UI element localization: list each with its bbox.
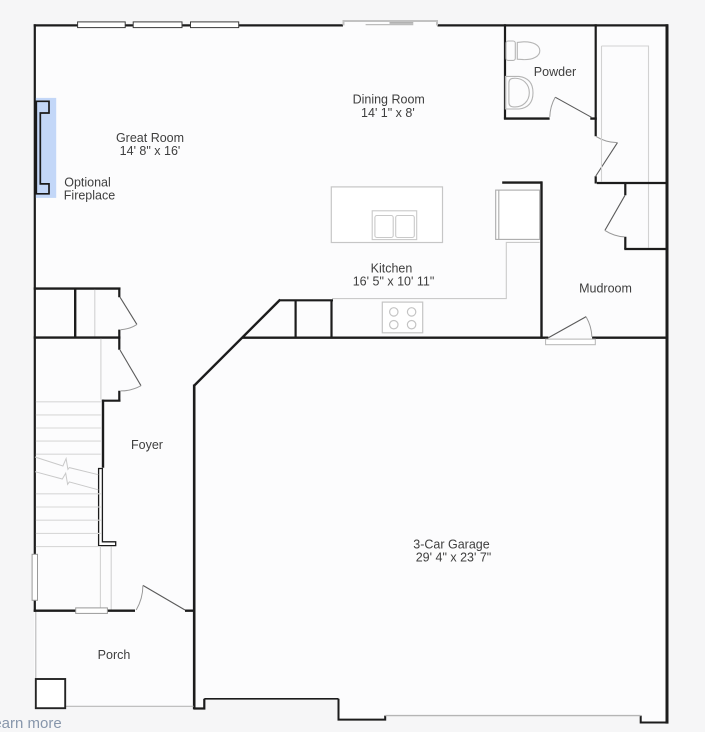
svg-text:Great Room: Great Room bbox=[116, 131, 184, 145]
svg-text:Optional: Optional bbox=[64, 175, 111, 189]
svg-text:Dining Room: Dining Room bbox=[353, 92, 425, 106]
svg-text:16' 5" x 10' 11": 16' 5" x 10' 11" bbox=[353, 274, 435, 288]
svg-text:Foyer: Foyer bbox=[131, 438, 163, 452]
svg-text:29' 4" x 23' 7": 29' 4" x 23' 7" bbox=[416, 550, 492, 564]
svg-text:Porch: Porch bbox=[98, 648, 131, 662]
svg-text:Powder: Powder bbox=[534, 65, 576, 79]
svg-text:14' 8" x 16': 14' 8" x 16' bbox=[120, 144, 181, 158]
svg-text:Mudroom: Mudroom bbox=[579, 282, 632, 296]
svg-text:Kitchen: Kitchen bbox=[371, 261, 413, 275]
svg-text:Fireplace: Fireplace bbox=[64, 189, 115, 203]
svg-text:14' 1" x 8': 14' 1" x 8' bbox=[361, 106, 415, 120]
